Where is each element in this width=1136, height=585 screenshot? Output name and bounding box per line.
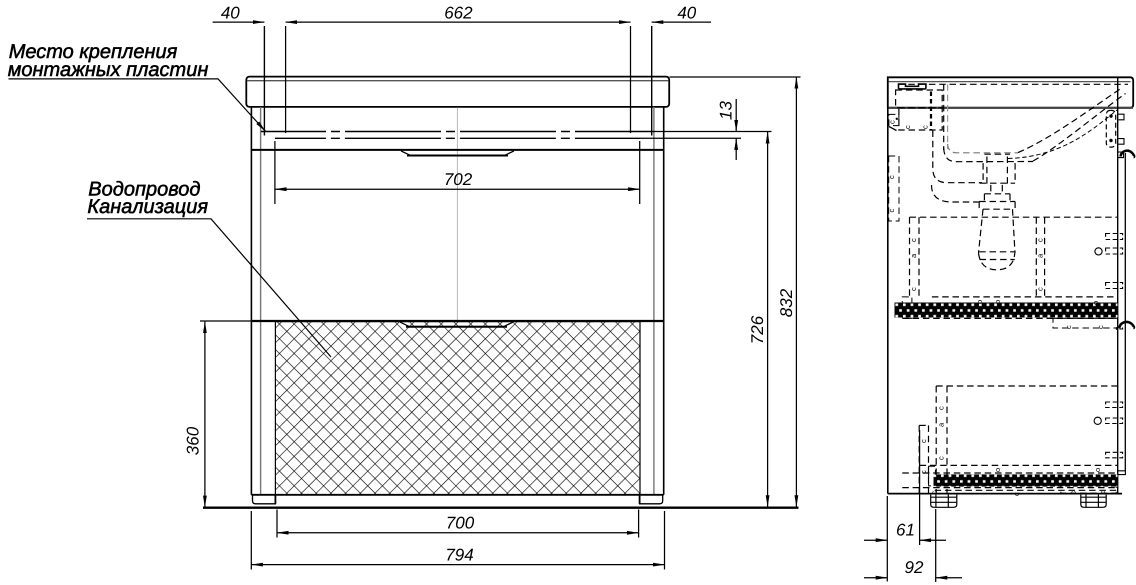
svg-text:794: 794 [445, 546, 473, 565]
svg-text:с: с [1036, 238, 1045, 242]
svg-text:монтажных пластин: монтажных пластин [8, 59, 209, 81]
svg-text:40: 40 [677, 4, 696, 23]
svg-text:с: с [930, 491, 939, 495]
svg-text:832: 832 [777, 288, 796, 317]
svg-text:40: 40 [221, 4, 240, 23]
svg-text:о: о [975, 300, 984, 304]
svg-text:726: 726 [748, 315, 767, 344]
svg-text:с: с [937, 406, 946, 410]
svg-text:92: 92 [905, 558, 924, 577]
svg-text:702: 702 [444, 170, 473, 189]
svg-text:с: с [937, 456, 946, 460]
svg-text:с: с [887, 175, 896, 179]
svg-text:700: 700 [446, 514, 475, 533]
svg-text:с: с [903, 125, 912, 129]
svg-text:с: с [921, 125, 930, 129]
svg-text:с: с [1036, 287, 1045, 291]
svg-text:о: о [1091, 301, 1100, 305]
svg-text:с: с [919, 470, 928, 474]
svg-text:с: с [909, 238, 918, 242]
svg-text:с: с [1069, 491, 1078, 495]
svg-text:61: 61 [896, 520, 915, 539]
svg-text:с: с [919, 439, 928, 443]
svg-text:662: 662 [444, 4, 473, 23]
svg-text:с: с [909, 287, 918, 291]
svg-text:с: с [1096, 325, 1105, 329]
svg-text:Канализация: Канализация [87, 196, 208, 218]
svg-text:о: о [993, 300, 1002, 304]
svg-text:с: с [887, 209, 896, 213]
svg-text:с: с [888, 120, 897, 124]
svg-text:13: 13 [717, 101, 736, 120]
svg-text:360: 360 [184, 426, 203, 455]
svg-text:с: с [1064, 325, 1073, 329]
svg-text:с: с [1012, 492, 1021, 496]
svg-text:о: о [993, 468, 1002, 472]
svg-text:с: с [1098, 491, 1107, 495]
svg-text:о: о [1093, 468, 1102, 472]
